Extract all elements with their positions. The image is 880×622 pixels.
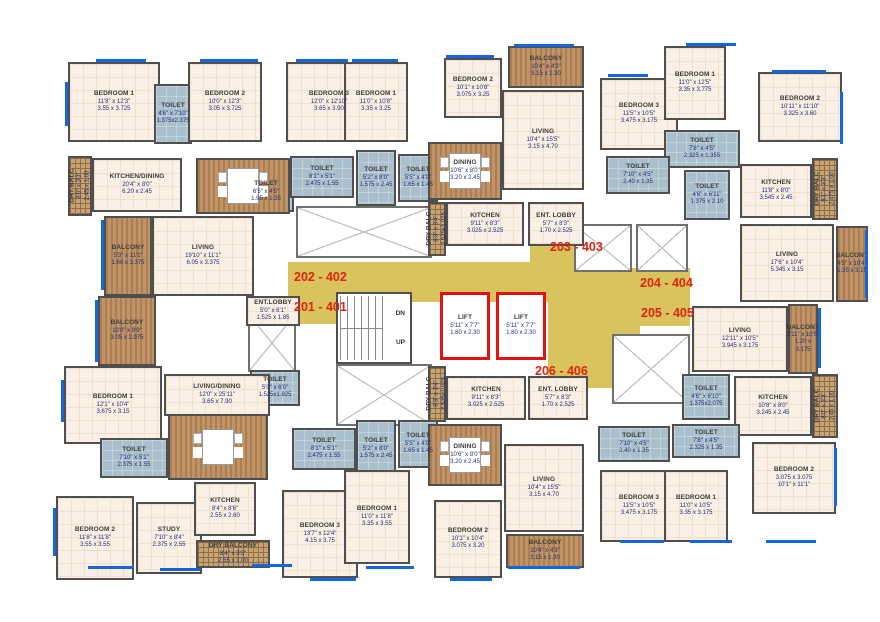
room-name: BALCONY — [111, 244, 144, 252]
lift-label: LIFT5'11" x 7'7"1.80 x 2.30 — [506, 314, 536, 337]
unit-number: 201 - 401 — [294, 300, 347, 314]
room-dimension-m: 3.20 x 2.45 — [450, 175, 480, 183]
room-name: BEDROOM 1 — [675, 71, 715, 79]
room-label: TOILET4'6" x 6'11"1.375 x 2.10 — [690, 183, 723, 206]
room-dimension-ft: 3'11" x 10'5" — [787, 332, 820, 340]
window-marker — [200, 59, 258, 62]
room-name: TOILET — [689, 429, 722, 437]
room-label: LIVING10'4" x 15'5"3.15 x 4.70 — [527, 128, 560, 151]
room-dimension-m: 3.35 x 3.175 — [676, 510, 716, 518]
room-dimension-m: 3.15 x 4.70 — [528, 492, 561, 500]
room-label: BEDROOM 23.075 x 3.07510'1" x 11'1" — [774, 466, 814, 489]
room-dimension-ft: 8'4" x 8'6" — [210, 506, 240, 514]
living: LIVING19'10" x 11'1"6.05 x 3.375 — [152, 216, 254, 296]
toilet: TOILET7'8" x 4'5"2.325 x 1.35 — [672, 424, 740, 458]
room-dimension-m: 3.55 x 3.55 — [75, 542, 115, 550]
room-dimension-ft: 20'4" x 8'0" — [110, 182, 165, 190]
room-label: KITCHEN8'4" x 8'6"2.55 x 2.60 — [210, 497, 240, 520]
room-name: TOILET — [623, 163, 653, 171]
balcony: BALCONY3'11" x 10'5"1.20 x 3.175 — [788, 304, 818, 374]
room-dimension-m: 1.70 x 2.525 — [538, 402, 578, 410]
room-dimension-m: 1.575 x 2.45 — [359, 182, 392, 190]
room-label: BEDROOM 111'0" x 11'8"3.35 x 3.55 — [357, 505, 397, 528]
room-label: ENT. LOBBY5'7" x 8'3"1.70 x 2.525 — [536, 212, 576, 235]
dry-balc: DRY BALC8'3" x 3'4"2.525x1.025 — [428, 202, 446, 256]
room-name: BEDROOM 3 — [619, 102, 659, 110]
room-label: KITCHEN11'8" x 8'0"3.545 x 2.45 — [759, 179, 792, 202]
room-label: BALCONY5'3" x 11'1"1.60 x 3.375 — [111, 244, 144, 267]
toilet: TOILET7'10" x 5'1"2.375 x 1.55 — [100, 438, 168, 478]
room-name: BEDROOM 2 — [774, 466, 814, 474]
room-dimension-ft: 11'8" x 12'3" — [94, 99, 134, 107]
room-label: BEDROOM 210'11" x 11'10"3.325 x 3.60 — [780, 95, 820, 118]
room-label: BALCONY4'5" x 10'4"1.35 x 3.15 — [836, 252, 869, 275]
room-name: TOILET — [359, 166, 392, 174]
window-marker — [61, 380, 64, 422]
room-dimension-m: 3.20 x 2.45 — [450, 459, 480, 467]
room-name: DRY BALC — [425, 212, 433, 246]
duct-shaft — [636, 224, 688, 272]
room-label: BEDROOM 111'0" x 10'5"3.35 x 3.175 — [676, 494, 716, 517]
room-dimension-m: 3.475 x 3.175 — [619, 118, 659, 126]
room-name: BEDROOM 2 — [780, 95, 820, 103]
room-dimension-ft: 8'0" x 3'3" — [822, 389, 830, 423]
room-dimension-ft: 6'5" x 4'5" — [251, 189, 281, 197]
room-dimension-m: 3.35 x 3.25 — [356, 106, 396, 114]
room-dimension-m: 5.345 x 3.15 — [770, 267, 803, 275]
room-label: LIVING17'6" x 10'4"5.345 x 3.15 — [770, 251, 803, 274]
toilet: TOILET4'6" x 6'11"1.375 x 2.10 — [684, 170, 730, 220]
room-name: BEDROOM 3 — [300, 522, 340, 530]
room-name: ENT.LOBBY — [254, 299, 292, 307]
room-dimension-ft: 13'7" x 12'4" — [300, 531, 340, 539]
room-label: DRY BALC8'0" x 3'3"2.45 x 1.00 — [68, 169, 91, 203]
room-dimension-ft: 8'3" x 3'4" — [434, 377, 442, 411]
room-label: DRY BALC8'0" x 3'3"2.45 x 1.00 — [813, 389, 836, 423]
bedroom-2: BEDROOM 210'0" x 12'3"3.05 x 3.725 — [188, 62, 262, 142]
room-dimension-m: 10'1" x 11'1" — [774, 482, 814, 490]
balcony: BALCONY10'4" x 4'3"3.15 x 1.30 — [506, 534, 584, 568]
room-dimension-m: 3.545 x 2.45 — [759, 195, 792, 203]
bedroom-2: BEDROOM 210'1" x 10'8"3.075 x 3.25 — [444, 58, 502, 118]
room-dimension-ft: 10'8" x 8'0" — [756, 403, 789, 411]
room-dimension-ft: 4'5" x 10'4" — [836, 261, 869, 269]
room-dimension-m: 3.55 x 3.725 — [94, 106, 134, 114]
window-marker — [865, 230, 868, 298]
window-marker — [252, 564, 292, 567]
room-dimension-m: 2.45 x 1.00 — [84, 169, 92, 203]
room-label: TOILET7'10" x 5'1"2.375 x 1.55 — [117, 446, 150, 469]
kitchen: KITCHEN11'8" x 8'0"3.545 x 2.45 — [740, 164, 812, 218]
window-marker — [160, 568, 200, 571]
kitchen: KITCHEN10'8" x 8'0"3.245 x 2.45 — [734, 376, 812, 436]
room-name: LIVING — [527, 128, 560, 136]
balcony: BALCONY4'5" x 10'4"1.35 x 3.15 — [836, 226, 868, 302]
room-label: BALCONY10'4" x 4'3"3.15 x 1.30 — [529, 539, 562, 562]
room-name: BEDROOM 2 — [75, 526, 115, 534]
room-name: BALCONY — [529, 539, 562, 547]
window-marker — [514, 44, 574, 47]
room-dimension-ft: 8'3" x 3'4" — [434, 212, 442, 246]
room-dimension-ft: 10'4" x 15'5" — [527, 137, 560, 145]
room-dimension-ft: 7'8" x 4'5" — [689, 438, 722, 446]
room-name: KITCHEN — [210, 497, 240, 505]
room-dimension-m: 2.475 x 1.55 — [305, 181, 338, 189]
bedroom-2: BEDROOM 210'11" x 11'10"3.325 x 3.60 — [758, 72, 842, 142]
unit-number: 202 - 402 — [294, 270, 347, 284]
room-name: BALCONY — [110, 319, 143, 327]
room-label: DRY BALC8'3" x 3'4"2.525x1.025 — [425, 212, 448, 246]
unit-number: 205 - 405 — [641, 306, 694, 320]
stairs-up-label: UP — [396, 339, 405, 346]
toilet: TOILET4'6" x 7'10"1.375x2.375 — [154, 84, 192, 144]
room-name: BEDROOM 2 — [448, 527, 488, 535]
room-dimension-ft: 5'5" x 4'9" — [403, 441, 433, 449]
room-label: DINING10'6" x 8'0"3.20 x 2.45 — [450, 159, 480, 182]
room-dimension-ft: 11'0" x 11'8" — [357, 514, 397, 522]
kitchen: KITCHEN9'11" x 8'3"3.025 x 2.525 — [446, 202, 524, 246]
room-dimension-m: 1.575 x 2.45 — [359, 453, 392, 461]
bedroom-1: BEDROOM 111'0" x 10'8"3.35 x 3.25 — [344, 62, 408, 142]
room-label: DRY BALCONY8'4" x 3'3"2.55 x 1.00 — [209, 542, 257, 565]
room-name: KITCHEN — [756, 394, 789, 402]
room-name: TOILET — [258, 376, 291, 384]
kitchen-dining: KITCHEN/DINING20'4" x 8'0"6.20 x 2.45 — [92, 158, 182, 212]
room-name: TOILET — [619, 432, 649, 440]
room-label: BALCONY10'4" x 4'3"3.15 x 1.30 — [530, 55, 563, 78]
lift: LIFT5'11" x 7'7"1.80 x 2.30 — [440, 292, 490, 360]
room-name: LIVING — [528, 476, 561, 484]
toilet: TOILET8'1" x 5'1"2.475 x 1.55 — [290, 156, 354, 198]
dry-balc: DRY BALC8'0" x 3'3"2.45 x 1.00 — [68, 156, 92, 216]
room-dimension-m: 3.15 x 4.70 — [527, 144, 560, 152]
room-dimension-m: 1.375 x 2.10 — [690, 199, 723, 207]
room-dimension-m: 6.05 x 3.375 — [185, 260, 221, 268]
room-dimension-m: 1.65 x 1.45 — [403, 448, 433, 456]
room-label: BEDROOM 311'5" x 10'5"3.475 x 3.175 — [619, 102, 659, 125]
room-dimension-ft: 10'1" x 10'8" — [453, 85, 493, 93]
staircase: DNUP — [336, 292, 412, 364]
dining: DINING10'6" x 8'0"3.20 x 2.45 — [428, 424, 502, 486]
room-dimension-m: 3.65 x 7.90 — [193, 399, 241, 407]
room-dimension-ft: 5'2" x 8'0" — [359, 446, 392, 454]
room-dimension-ft: 12'1" x 10'4" — [93, 402, 133, 410]
room-dimension-m: 2.55 x 1.00 — [209, 558, 257, 566]
room-name: BEDROOM 1 — [676, 494, 716, 502]
room-label: TOILET4'6" x 6'10"1.375x2.075 — [689, 385, 722, 408]
room-name: DRY BALC — [425, 377, 433, 411]
room-dimension-ft: 11'8" x 11'8" — [75, 535, 115, 543]
living-dining: LIVING/DINING12'0" x 25'11"3.65 x 7.90 — [164, 374, 270, 416]
room-dimension-ft: 7'10" x 5'1" — [117, 455, 150, 463]
room-name: DRY BALC — [813, 389, 821, 423]
room-name: LIVING — [185, 244, 221, 252]
floor-plan-canvas: DNUPBEDROOM 111'8" x 12'3"3.55 x 3.725TO… — [0, 0, 880, 622]
room-dimension-m: 2.525x1.025 — [441, 377, 449, 411]
room-dimension-m: 1.525 x 1.85 — [254, 315, 292, 323]
room-dimension-ft: 8'1" x 5'1" — [305, 174, 338, 182]
room-dimension-ft: 5'0" x 6'0" — [258, 385, 291, 393]
room-label: LIVING19'10" x 11'1"6.05 x 3.375 — [185, 244, 221, 267]
room-dimension-ft: 3.075 x 3.075 — [774, 475, 814, 483]
room-label: STUDY7'10" x 8'4"2.375 x 2.55 — [152, 526, 185, 549]
room-dimension-ft: 5'0" x 6'1" — [254, 308, 292, 316]
room-label: ENT.LOBBY5'0" x 6'1"1.525 x 1.85 — [254, 299, 292, 322]
room-name: ENT. LOBBY — [536, 212, 576, 220]
window-marker — [450, 578, 492, 581]
room-label: KITCHEN9'11" x 8'3"3.025 x 2.525 — [467, 212, 503, 235]
toilet: TOILET7'10" x 4'5"2.40 x 1.35 — [598, 426, 670, 462]
window-marker — [65, 82, 68, 126]
room-dimension-m: 3.05 x 3.725 — [205, 106, 245, 114]
room-name: DINING — [450, 159, 480, 167]
room-name: BALCONY — [836, 252, 869, 260]
room-dimension-m: 3.05 x 2.975 — [110, 335, 143, 343]
window-marker — [766, 540, 816, 543]
toilet: TOILET8'1" x 5'1"2.475 x 1.55 — [292, 428, 356, 470]
room-dimension-ft: 8'4" x 3'3" — [209, 551, 257, 559]
room-dimension-m: 3.675 x 3.15 — [93, 409, 133, 417]
room-name: TOILET — [117, 446, 150, 454]
room-dimension-m: 1.65 x 1.45 — [403, 182, 433, 190]
room-label: BEDROOM 211'8" x 11'8"3.55 x 3.55 — [75, 526, 115, 549]
room-name: KITCHEN/DINING — [110, 173, 165, 181]
room-dimension-ft: 5'5" x 4'9" — [403, 175, 433, 183]
unit-number: 206 - 406 — [535, 364, 588, 378]
dining-table — [202, 429, 234, 465]
room-dimension-m: 2.475 x 1.00 — [829, 172, 837, 206]
room-dimension-ft: 11'0" x 10'5" — [676, 503, 716, 511]
room-dimension-ft: 8'1" x 3'3" — [822, 172, 830, 206]
ent-lobby: ENT. LOBBY5'7" x 8'3"1.70 x 2.525 — [528, 376, 588, 420]
room-name: LIVING — [722, 327, 758, 335]
room-dimension-ft: 10'0" x 12'3" — [205, 99, 245, 107]
window-marker — [101, 220, 104, 290]
room-name: BEDROOM 1 — [357, 505, 397, 513]
room-label: BEDROOM 111'0" x 10'8"3.35 x 3.25 — [356, 90, 396, 113]
window-marker — [53, 508, 56, 556]
room-dimension-ft: 5'3" x 11'1" — [111, 253, 144, 261]
bedroom-2: BEDROOM 23.075 x 3.07510'1" x 11'1" — [752, 442, 836, 514]
room-dimension-m: 3.075 x 3.25 — [453, 92, 493, 100]
room-name: KITCHEN — [467, 212, 503, 220]
room-dimension-m: 3.245 x 2.45 — [756, 410, 789, 418]
window-marker — [840, 92, 843, 144]
room-label: TOILET4'6" x 7'10"1.375x2.375 — [156, 102, 189, 125]
room-dimension-ft: 7'10" x 8'4" — [152, 535, 185, 543]
window-marker — [352, 59, 398, 62]
room-label: TOILET7'8" x 4'5"2.325 x 1.355 — [684, 137, 720, 160]
room-label: BALCONY10'0" x 9'9"3.05 x 2.975 — [110, 319, 143, 342]
living: LIVING10'4" x 15'5"3.15 x 4.70 — [502, 90, 584, 190]
unit-number: 203 - 403 — [550, 240, 603, 254]
lift-dimension-m: 1.80 x 2.30 — [450, 330, 480, 338]
window-marker — [818, 308, 821, 368]
room-name: TOILET — [403, 432, 433, 440]
room-dimension-m: 2.375 x 1.55 — [117, 462, 150, 470]
room-dimension-ft: 9'11" x 8'3" — [467, 221, 503, 229]
room-dimension-ft: 4'6" x 6'11" — [690, 192, 723, 200]
room-dimension-m: 2.55 x 2.60 — [210, 513, 240, 521]
room-name: TOILET — [156, 102, 189, 110]
dining: DINING10'6" x 8'0"3.20 x 2.45 — [428, 142, 502, 200]
room-dimension-ft: 10'4" x 15'5" — [528, 485, 561, 493]
room-name: DRY BALCONY — [209, 542, 257, 550]
room-label: BEDROOM 210'1" x 10'8"3.075 x 3.25 — [453, 76, 493, 99]
room-label: BEDROOM 313'7" x 12'4"4.15 x 3.75 — [300, 522, 340, 545]
room-name: BEDROOM 2 — [453, 76, 493, 84]
room-dimension-ft: 11'0" x 10'8" — [356, 99, 396, 107]
room-label: BEDROOM 312'0" x 12'10"3.65 x 3.90 — [309, 90, 349, 113]
room-dimension-ft: 10'6" x 8'0" — [450, 168, 480, 176]
lift-name: LIFT — [506, 314, 536, 322]
room-label: TOILET5'2" x 8'0"1.575 x 2.45 — [359, 166, 392, 189]
room-dimension-m: 1.70 x 2.525 — [536, 228, 576, 236]
room-name: TOILET — [403, 166, 433, 174]
window-marker — [608, 74, 648, 77]
stair-mid-landing — [340, 328, 382, 329]
room-name: BEDROOM 1 — [94, 90, 134, 98]
room-dimension-m: 1.525x1.825 — [258, 392, 291, 400]
room-name: TOILET — [690, 183, 723, 191]
room-dimension-m: 3.35 x 3.55 — [357, 521, 397, 529]
room-name: BEDROOM 3 — [619, 494, 659, 502]
room-label: LIVING/DINING12'0" x 25'11"3.65 x 7.90 — [193, 383, 241, 406]
room-name: DRY BALC — [68, 169, 76, 203]
toilet: TOILET4'6" x 6'10"1.375x2.075 — [682, 374, 730, 420]
bedroom-1: BEDROOM 111'0" x 10'5"3.35 x 3.175 — [664, 470, 728, 542]
room-name: DINING — [450, 443, 480, 451]
window-marker — [772, 70, 826, 73]
room-dimension-ft: 9'11" x 8'3" — [468, 395, 504, 403]
room-name: TOILET — [684, 137, 720, 145]
room-name: TOILET — [305, 165, 338, 173]
window-marker — [834, 448, 837, 506]
room-dimension-ft: 4'6" x 7'10" — [156, 111, 189, 119]
room-dimension-m: 3.945 x 3.175 — [722, 343, 758, 351]
room-dimension-ft: 12'0" x 12'10" — [309, 99, 349, 107]
duct-shaft — [612, 334, 690, 404]
room-label: TOILET8'1" x 5'1"2.475 x 1.55 — [307, 437, 340, 460]
bedroom-1: BEDROOM 112'1" x 10'4"3.675 x 3.15 — [64, 366, 162, 444]
dry-balc: DRY BALC8'1" x 3'3"2.475 x 1.00 — [812, 158, 838, 220]
room-dimension-m: 1.60 x 3.375 — [111, 260, 144, 268]
room-name: KITCHEN — [468, 386, 504, 394]
room-dimension-m: 1.35 x 3.15 — [836, 268, 869, 276]
wood-deck — [168, 414, 268, 480]
room-dimension-m: 2.40 x 1.35 — [623, 179, 653, 187]
window-marker — [446, 55, 494, 58]
room-label: BEDROOM 111'0" x 12'5"3.35 x 3.775 — [675, 71, 715, 94]
room-name: BEDROOM 1 — [93, 393, 133, 401]
room-dimension-ft: 12'11" x 10'5" — [722, 336, 758, 344]
room-dimension-ft: 8'1" x 5'1" — [307, 446, 340, 454]
room-label: KITCHEN10'8" x 8'0"3.245 x 2.45 — [756, 394, 789, 417]
room-dimension-m: 3.325 x 3.60 — [780, 111, 820, 119]
lift-label: LIFT5'11" x 7'7"1.80 x 2.30 — [450, 314, 480, 337]
room-dimension-m: 1.20 x 3.175 — [787, 339, 820, 354]
room-dimension-ft: 19'10" x 11'1" — [185, 253, 221, 261]
window-marker — [366, 566, 414, 569]
room-dimension-m: 3.475 x 3.175 — [619, 510, 659, 518]
dry-balc: DRY BALC8'3" x 3'4"2.525x1.025 — [428, 366, 446, 422]
room-dimension-ft: 10'11" x 11'10" — [780, 104, 820, 112]
room-dimension-ft: 10'4" x 4'3" — [529, 548, 562, 556]
room-name: BALCONY — [787, 324, 820, 332]
balcony: BALCONY10'4" x 4'3"3.15 x 1.30 — [508, 46, 584, 88]
living: LIVING17'6" x 10'4"5.345 x 3.15 — [740, 224, 834, 302]
room-label: TOILET5'0" x 6'0"1.525x1.825 — [258, 376, 291, 399]
room-name: LIVING/DINING — [193, 383, 241, 391]
living: LIVING10'4" x 15'5"3.15 x 4.70 — [504, 444, 584, 532]
room-dimension-ft: 7'10" x 4'5" — [623, 172, 653, 180]
room-dimension-ft: 10'6" x 8'0" — [450, 452, 480, 460]
room-label: TOILET6'5" x 4'5"1.95 x 1.35 — [251, 180, 281, 203]
room-label: KITCHEN/DINING20'4" x 8'0"6.20 x 2.45 — [110, 173, 165, 196]
room-label: DRY BALC8'3" x 3'4"2.525x1.025 — [425, 377, 448, 411]
room-dimension-ft: 12'0" x 25'11" — [193, 392, 241, 400]
bedroom-1: BEDROOM 111'8" x 12'3"3.55 x 3.725 — [68, 62, 160, 142]
room-dimension-m: 3.15 x 1.30 — [530, 71, 563, 79]
room-dimension-ft: 11'0" x 12'5" — [675, 80, 715, 88]
room-name: BALCONY — [530, 55, 563, 63]
kitchen: KITCHEN8'4" x 8'6"2.55 x 2.60 — [194, 482, 256, 536]
room-name: BEDROOM 2 — [205, 90, 245, 98]
living: LIVING12'11" x 10'5"3.945 x 3.175 — [692, 306, 788, 372]
lift-dimension-m: 1.80 x 2.30 — [506, 330, 536, 338]
room-label: DINING10'6" x 8'0"3.20 x 2.45 — [450, 443, 480, 466]
room-label: BEDROOM 210'0" x 12'3"3.05 x 3.725 — [205, 90, 245, 113]
room-dimension-m: 3.65 x 3.90 — [309, 106, 349, 114]
window-marker — [686, 43, 736, 46]
room-dimension-m: 1.95 x 1.35 — [251, 196, 281, 204]
room-label: TOILET7'10" x 4'5"2.40 x 1.35 — [619, 432, 649, 455]
toilet: TOILET7'10" x 4'5"2.40 x 1.35 — [606, 156, 670, 194]
room-dimension-ft: 11'8" x 8'0" — [759, 188, 792, 196]
room-name: LIVING — [770, 251, 803, 259]
bedroom-1: BEDROOM 111'0" x 12'5"3.35 x 3.775 — [664, 46, 726, 120]
bedroom-2: BEDROOM 210'1" x 10'4"3.075 x 3.20 — [434, 500, 502, 578]
room-name: TOILET — [359, 437, 392, 445]
ent-lobby: ENT.LOBBY5'0" x 6'1"1.525 x 1.85 — [246, 296, 300, 326]
room-name: KITCHEN — [759, 179, 792, 187]
room-label: LIVING12'11" x 10'5"3.945 x 3.175 — [722, 327, 758, 350]
balcony: BALCONY5'3" x 11'1"1.60 x 3.375 — [104, 216, 152, 296]
stairs-down-label: DN — [396, 310, 405, 317]
room-label: BEDROOM 311'5" x 10'5"3.475 x 3.175 — [619, 494, 659, 517]
room-dimension-ft: 5'7" x 8'3" — [538, 395, 578, 403]
room-label: TOILET5'5" x 4'9"1.65 x 1.45 — [403, 432, 433, 455]
room-label: BEDROOM 210'1" x 10'4"3.075 x 3.20 — [448, 527, 488, 550]
study: STUDY7'10" x 8'4"2.375 x 2.55 — [136, 502, 202, 574]
window-marker — [95, 300, 98, 362]
room-dimension-m: 3.025 x 2.525 — [467, 228, 503, 236]
room-dimension-m: 1.375x2.375 — [156, 118, 189, 126]
room-label: KITCHEN9'11" x 8'3"3.025 x 2.525 — [468, 386, 504, 409]
room-label: ENT. LOBBY5'7" x 8'3"1.70 x 2.525 — [538, 386, 578, 409]
room-name: TOILET — [689, 385, 722, 393]
toilet: TOILET5'2" x 8'0"1.575 x 2.45 — [356, 150, 396, 206]
room-dimension-m: 2.40 x 1.35 — [619, 448, 649, 456]
room-name: ENT. LOBBY — [538, 386, 578, 394]
balcony: BALCONY10'0" x 9'9"3.05 x 2.975 — [98, 296, 156, 366]
room-dimension-ft: 4'6" x 6'10" — [689, 394, 722, 402]
room-dimension-m: 2.375 x 2.55 — [152, 542, 185, 550]
room-label: BALCONY3'11" x 10'5"1.20 x 3.175 — [787, 324, 820, 355]
duct-shaft — [296, 206, 432, 258]
dry-balc: DRY BALC8'0" x 3'3"2.45 x 1.00 — [812, 374, 838, 438]
room-dimension-m: 2.45 x 1.00 — [829, 389, 837, 423]
